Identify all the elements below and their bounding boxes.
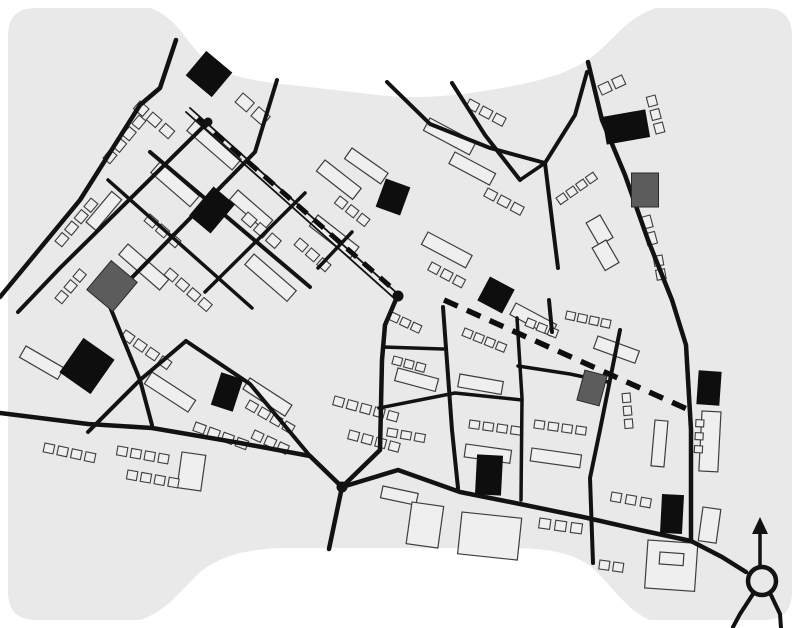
building-footprint — [158, 453, 169, 464]
building-footprint — [510, 426, 521, 435]
building-slab — [458, 512, 522, 560]
building-slab — [177, 452, 206, 491]
building-footprint — [154, 475, 165, 486]
building-footprint — [622, 393, 631, 403]
landmark-building — [660, 494, 684, 534]
building-footprint — [625, 495, 636, 506]
building-footprint — [548, 422, 559, 431]
building-footprint — [654, 122, 665, 134]
junction-dot — [393, 291, 404, 302]
building-footprint — [695, 433, 703, 440]
building-footprint — [483, 422, 494, 431]
building-footprint — [57, 446, 69, 457]
building-footprint — [575, 426, 586, 435]
building-footprint — [613, 562, 624, 572]
landmark-building — [696, 370, 721, 406]
building-footprint — [562, 424, 573, 433]
building-footprint — [640, 497, 651, 508]
building-footprint — [650, 109, 661, 121]
roundabout-circle — [748, 567, 776, 595]
landmark-building — [475, 454, 503, 495]
junction-dot — [204, 118, 213, 127]
building-footprint — [333, 396, 345, 407]
building-footprint — [387, 410, 399, 421]
building-footprint — [43, 443, 55, 454]
building-footprint — [696, 420, 704, 427]
building-footprint — [554, 520, 566, 531]
building-footprint — [144, 451, 155, 462]
building-footprint — [415, 362, 426, 372]
building-footprint — [348, 430, 360, 441]
building-footprint — [84, 452, 96, 463]
building-footprint — [392, 356, 403, 366]
map-canvas — [0, 0, 800, 628]
building-footprint — [646, 95, 657, 107]
building-footprint — [565, 311, 575, 321]
building-footprint — [361, 434, 373, 445]
building-slab — [659, 552, 684, 566]
building-footprint — [140, 472, 151, 483]
central-horizontal-h2 — [383, 347, 443, 349]
building-slab — [406, 502, 444, 548]
building-footprint — [589, 316, 599, 326]
building-footprint — [497, 424, 508, 433]
building-footprint — [469, 420, 480, 429]
city-map-svg — [0, 0, 800, 628]
building-footprint — [130, 448, 141, 459]
building-footprint — [414, 433, 425, 443]
building-footprint — [610, 492, 621, 503]
building-footprint — [346, 400, 358, 411]
building-footprint — [168, 477, 179, 488]
building-footprint — [534, 420, 545, 429]
building-footprint — [387, 428, 398, 438]
city-map-figure — [0, 0, 800, 628]
building-footprint — [577, 313, 587, 323]
gray-building — [632, 173, 659, 207]
building-footprint — [400, 430, 411, 440]
building-slab — [698, 507, 721, 543]
building-footprint — [116, 446, 127, 457]
building-slab — [645, 540, 698, 591]
building-footprint — [601, 318, 611, 328]
building-footprint — [388, 441, 400, 452]
building-footprint — [539, 518, 551, 529]
building-footprint — [570, 522, 582, 533]
building-footprint — [624, 419, 633, 429]
building-row — [694, 420, 704, 453]
building-footprint — [126, 470, 137, 481]
building-footprint — [360, 403, 372, 414]
building-footprint — [71, 449, 83, 460]
building-footprint — [694, 446, 702, 453]
building-footprint — [599, 560, 610, 570]
building-footprint — [404, 359, 415, 369]
junction-dot — [337, 482, 348, 493]
building-footprint — [623, 406, 632, 416]
